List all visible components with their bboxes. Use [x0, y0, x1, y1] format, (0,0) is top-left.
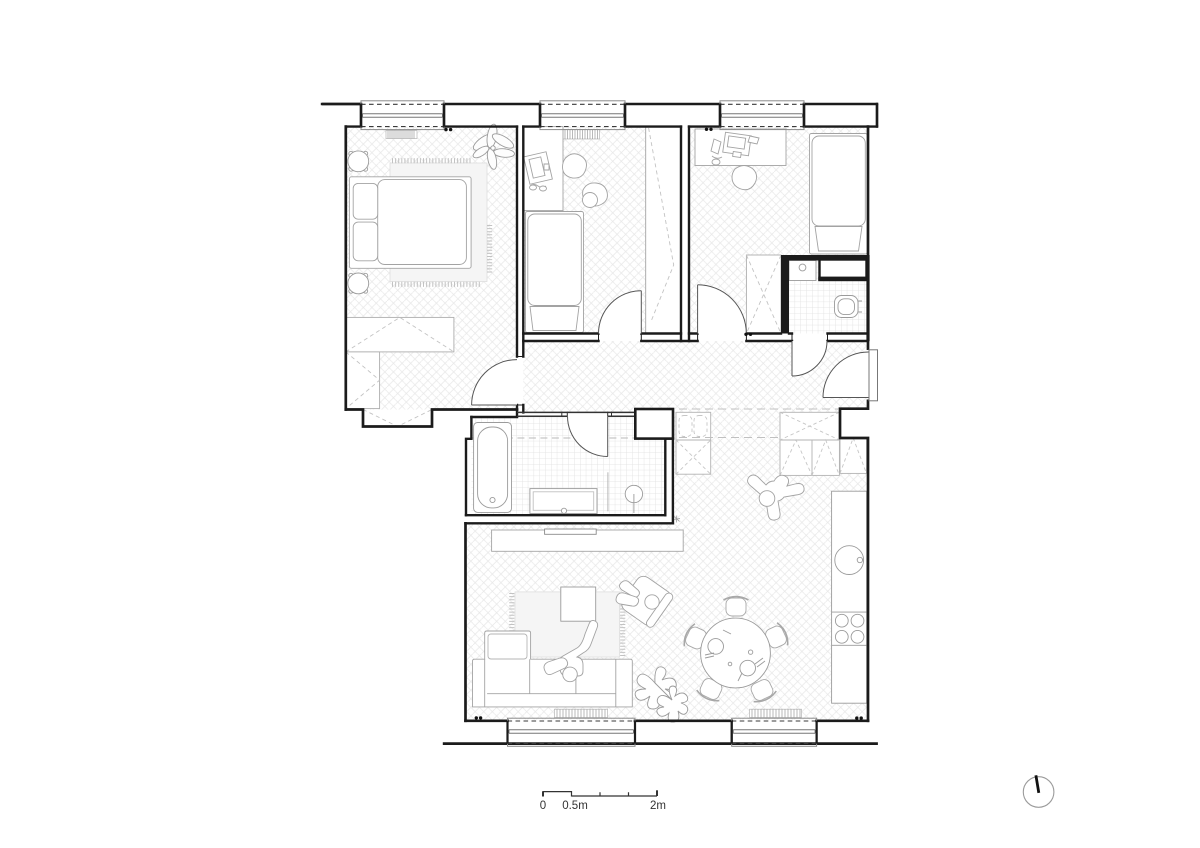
- svg-text:2m: 2m: [650, 800, 666, 812]
- svg-text:0: 0: [540, 800, 546, 812]
- svg-text:0.5m: 0.5m: [562, 800, 588, 812]
